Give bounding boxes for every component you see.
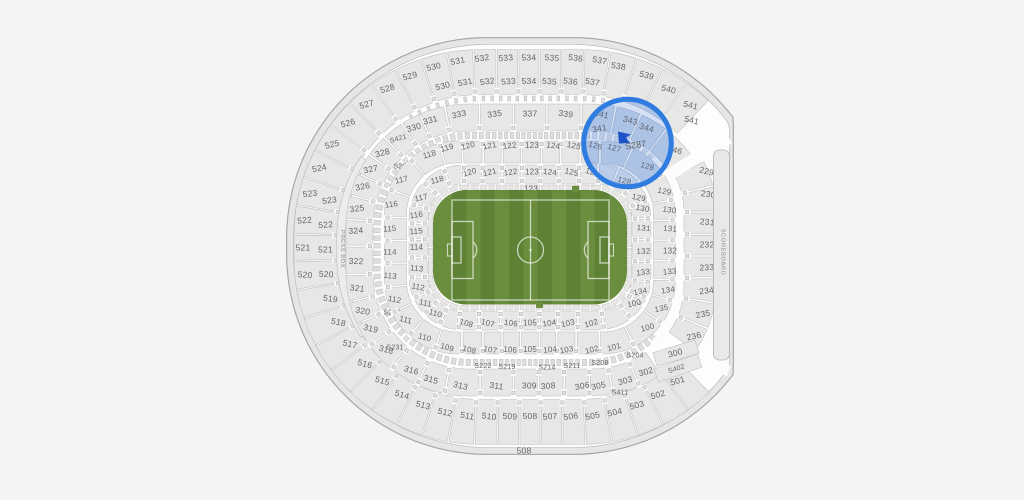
svg-text:S208: S208 (591, 360, 608, 367)
svg-text:S222: S222 (474, 363, 491, 370)
svg-text:534: 534 (522, 53, 537, 63)
svg-text:S204: S204 (626, 353, 643, 360)
svg-text:233: 233 (699, 262, 714, 273)
svg-text:132: 132 (663, 247, 677, 256)
svg-text:131: 131 (663, 224, 678, 234)
svg-text:105: 105 (523, 345, 537, 354)
svg-text:132: 132 (636, 247, 650, 256)
svg-text:S231: S231 (386, 345, 403, 352)
svg-text:522: 522 (318, 219, 334, 230)
svg-text:115: 115 (409, 226, 423, 236)
svg-text:536: 536 (563, 75, 579, 87)
svg-text:232: 232 (700, 240, 715, 250)
svg-text:533: 533 (498, 52, 514, 63)
svg-text:520: 520 (297, 269, 313, 280)
svg-text:533: 533 (501, 76, 517, 87)
svg-text:520: 520 (318, 269, 334, 280)
svg-text:S214: S214 (538, 365, 555, 372)
svg-text:536: 536 (568, 52, 584, 64)
svg-text:335: 335 (487, 108, 503, 120)
svg-text:114: 114 (383, 247, 397, 256)
svg-text:510: 510 (481, 410, 497, 422)
svg-text:133: 133 (636, 267, 651, 278)
svg-text:105: 105 (523, 319, 537, 328)
svg-text:124: 124 (546, 140, 561, 151)
svg-text:523: 523 (302, 188, 318, 200)
svg-text:308: 308 (540, 380, 556, 391)
svg-text:534: 534 (522, 76, 537, 86)
svg-text:523: 523 (321, 194, 337, 206)
svg-text:311: 311 (489, 380, 504, 392)
svg-text:PRESS BOX: PRESS BOX (339, 230, 345, 268)
svg-text:532: 532 (474, 52, 490, 64)
svg-text:113: 113 (410, 263, 425, 273)
svg-text:535: 535 (544, 52, 560, 63)
svg-text:522: 522 (297, 215, 313, 226)
svg-text:535: 535 (542, 76, 558, 87)
svg-text:131: 131 (636, 223, 651, 233)
svg-text:122: 122 (502, 140, 517, 150)
svg-text:337: 337 (523, 109, 538, 119)
svg-text:509: 509 (502, 411, 518, 422)
svg-text:508: 508 (523, 411, 538, 421)
svg-text:519: 519 (322, 293, 338, 305)
svg-text:521: 521 (318, 244, 333, 254)
svg-text:133: 133 (662, 266, 677, 276)
svg-text:123: 123 (525, 168, 539, 177)
svg-text:S211: S211 (564, 363, 581, 370)
svg-text:113: 113 (383, 271, 398, 281)
svg-text:114: 114 (410, 243, 424, 252)
svg-text:506: 506 (563, 410, 579, 422)
svg-text:322: 322 (349, 256, 364, 267)
svg-text:SCOREBOARD: SCOREBOARD (720, 229, 726, 276)
svg-text:231: 231 (699, 216, 715, 227)
svg-text:508: 508 (517, 446, 532, 456)
svg-text:507: 507 (542, 411, 558, 422)
svg-text:115: 115 (383, 224, 397, 234)
svg-text:234: 234 (699, 285, 715, 297)
svg-text:339: 339 (558, 108, 574, 120)
svg-text:104: 104 (543, 344, 558, 354)
svg-text:325: 325 (349, 202, 365, 214)
svg-text:521: 521 (296, 242, 311, 252)
svg-text:S219: S219 (498, 364, 515, 371)
svg-text:S411: S411 (612, 390, 629, 397)
svg-text:321: 321 (349, 282, 365, 294)
svg-text:106: 106 (503, 345, 518, 355)
svg-text:123: 123 (525, 141, 539, 150)
svg-text:309: 309 (522, 381, 537, 391)
svg-text:324: 324 (348, 225, 363, 236)
svg-text:532: 532 (479, 75, 495, 87)
